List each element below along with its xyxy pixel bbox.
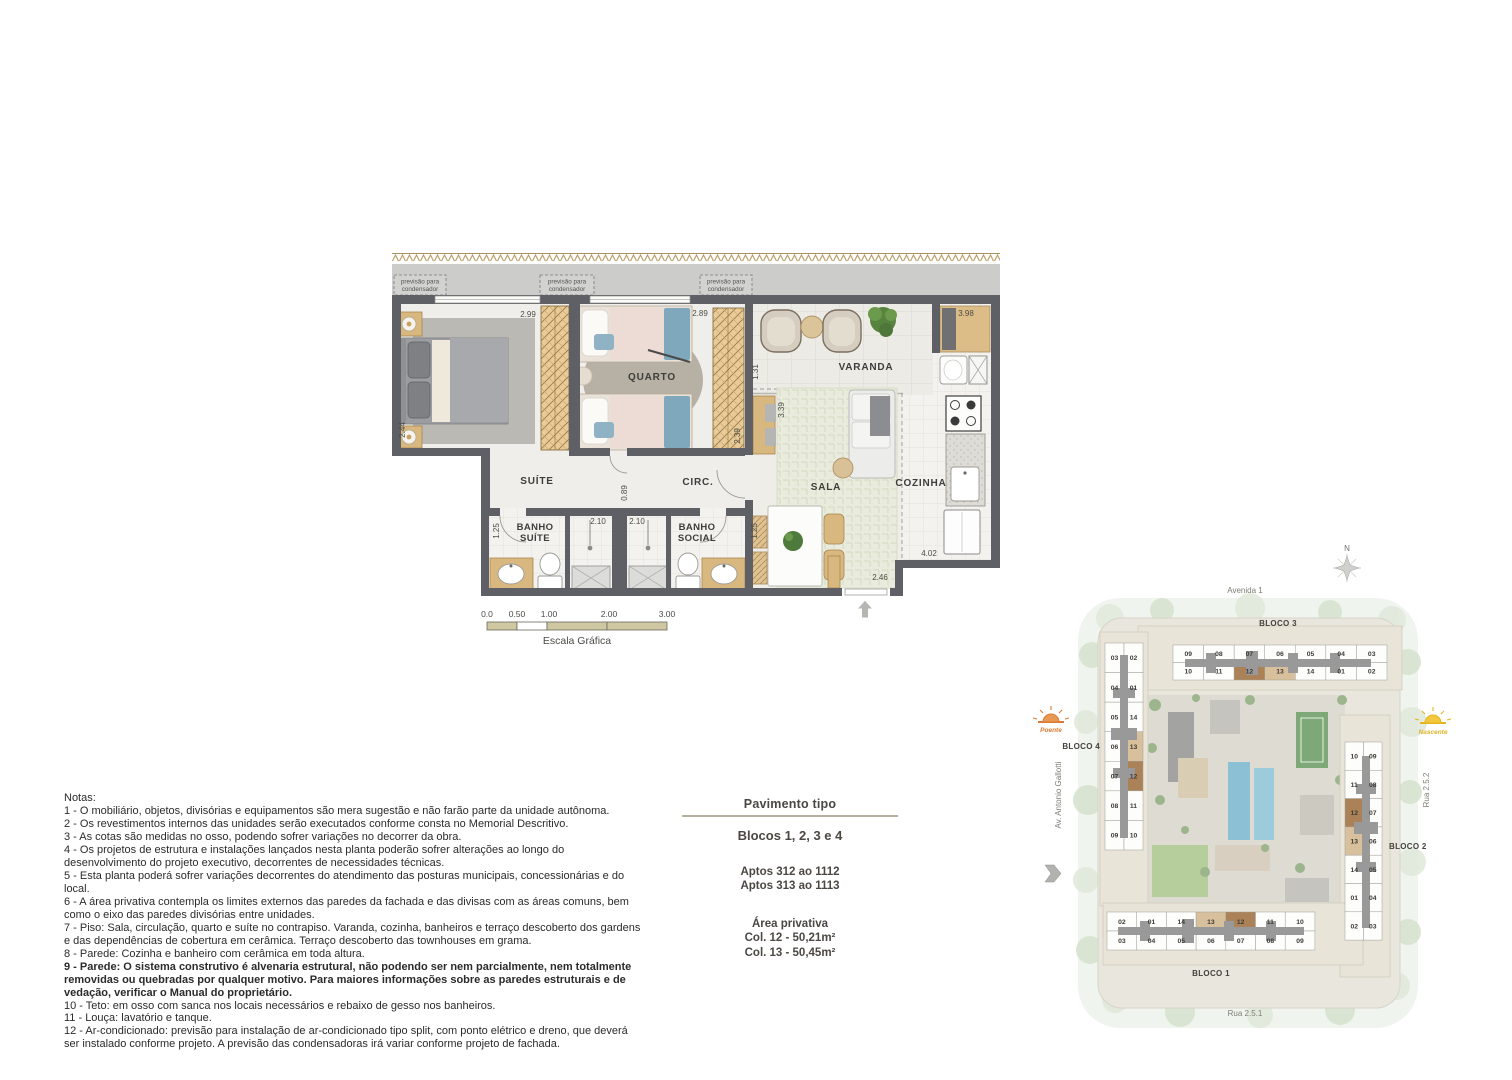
sun-east-label: Nascente bbox=[1419, 729, 1448, 736]
unit-number: 14 bbox=[1177, 919, 1185, 926]
unit-number: 06 bbox=[1369, 838, 1377, 845]
aptos-line: Aptos 312 ao 1112 bbox=[682, 865, 898, 879]
scale-tick: 0.50 bbox=[509, 609, 526, 619]
unit-number: 09 bbox=[1111, 833, 1119, 840]
unit-number: 14 bbox=[1350, 867, 1358, 874]
note-item: 6 - A área privativa contempla os limite… bbox=[64, 896, 644, 922]
dim-suite-left: 2.44 bbox=[398, 422, 407, 438]
area-line: Col. 13 - 50,45m² bbox=[682, 946, 898, 960]
room-label-banho-suite: BANHO bbox=[517, 522, 554, 533]
block-label: BLOCO 3 bbox=[1259, 619, 1297, 628]
aptos-line: Aptos 313 ao 1113 bbox=[682, 879, 898, 893]
unit-number: 07 bbox=[1111, 773, 1119, 780]
sofa bbox=[849, 390, 895, 478]
street-label-bottom: Rua 2.5.1 bbox=[1228, 1009, 1263, 1018]
unit-number: 11 bbox=[1215, 669, 1222, 676]
condenser-label: previsão para bbox=[707, 279, 746, 286]
info-panel-divider bbox=[682, 815, 898, 817]
note-item: 1 - O mobiliário, objetos, divisórias e … bbox=[64, 805, 644, 818]
condenser-label: condensador bbox=[402, 286, 438, 293]
unit-number: 03 bbox=[1118, 938, 1126, 945]
unit-number: 13 bbox=[1207, 919, 1215, 926]
note-item: 10 - Teto: em osso com sanca nos locais … bbox=[64, 1000, 644, 1013]
unit-number: 11 bbox=[1267, 919, 1274, 926]
unit-number: 10 bbox=[1185, 669, 1193, 676]
unit-number: 08 bbox=[1267, 938, 1275, 945]
unit-number: 04 bbox=[1369, 895, 1377, 902]
unit-number: 10 bbox=[1296, 919, 1304, 926]
unit-number: 02 bbox=[1118, 919, 1126, 926]
compass-n-label: N bbox=[1344, 544, 1350, 553]
dim-sala-bottom: 2.46 bbox=[872, 573, 888, 582]
block-label: BLOCO 1 bbox=[1192, 969, 1230, 978]
scale-tick: 3.00 bbox=[659, 609, 676, 619]
note-item: 11 - Louça: lavatório e tanque. bbox=[64, 1012, 644, 1025]
unit-number: 03 bbox=[1368, 651, 1376, 658]
dim-shower-2: 2.10 bbox=[629, 517, 645, 526]
unit-number: 07 bbox=[1237, 938, 1245, 945]
unit-number: 12 bbox=[1237, 919, 1245, 926]
street-label-left: Av. Antonio Gallotti bbox=[1054, 761, 1063, 828]
room-label-cozinha: COZINHA bbox=[895, 478, 946, 489]
unit-number: 07 bbox=[1246, 651, 1254, 658]
brochure-page: previsão para condensador previsão para … bbox=[0, 0, 1512, 1080]
unit-number: 01 bbox=[1148, 919, 1156, 926]
unit-number: 06 bbox=[1111, 744, 1119, 751]
condenser-label: condensador bbox=[708, 286, 744, 293]
dim-banho-suite: 1.25 bbox=[492, 523, 501, 539]
unit-number: 03 bbox=[1369, 923, 1377, 930]
condenser-box-3: previsão para condensador bbox=[700, 275, 752, 295]
unit-number: 14 bbox=[1307, 669, 1315, 676]
dim-varanda-left: 1.31 bbox=[751, 364, 760, 380]
condenser-label: condensador bbox=[549, 286, 585, 293]
sun-west-label: Poente bbox=[1040, 727, 1062, 734]
unit-number: 02 bbox=[1350, 923, 1358, 930]
note-item: 8 - Parede: Cozinha e banheiro com cerâm… bbox=[64, 948, 644, 961]
block-label: BLOCO 2 bbox=[1389, 842, 1427, 851]
room-label-banho-suite: SUÍTE bbox=[520, 533, 550, 544]
unit-number: 06 bbox=[1276, 651, 1284, 658]
unit-number: 03 bbox=[1111, 655, 1119, 662]
note-item: 9 - Parede: O sistema construtivo é alve… bbox=[64, 961, 644, 1000]
dim-quarto-top: 2.89 bbox=[692, 309, 708, 318]
unit-number: 04 bbox=[1337, 651, 1345, 658]
unit-number: 12 bbox=[1130, 773, 1138, 780]
unit-number: 12 bbox=[1246, 669, 1254, 676]
scale-bar: 0.0 0.50 1.00 2.00 3.00 Escala Gráfica bbox=[481, 609, 675, 647]
suite-furniture bbox=[396, 306, 569, 450]
unit-number: 05 bbox=[1369, 867, 1377, 874]
compass: N bbox=[1333, 544, 1361, 582]
facade-strip bbox=[392, 253, 1000, 295]
unit-number: 13 bbox=[1130, 744, 1138, 751]
unit-number: 05 bbox=[1177, 938, 1185, 945]
unit-number: 05 bbox=[1307, 651, 1315, 658]
street-label-top: Avenida 1 bbox=[1227, 586, 1263, 595]
unit-number: 04 bbox=[1111, 685, 1119, 692]
room-label-quarto: QUARTO bbox=[628, 372, 676, 383]
area-title: Área privativa bbox=[682, 917, 898, 931]
room-label-circ: CIRC. bbox=[682, 477, 713, 488]
condenser-label: previsão para bbox=[401, 279, 440, 286]
double-bed bbox=[396, 338, 508, 424]
unit-number: 09 bbox=[1296, 938, 1304, 945]
info-panel-title: Pavimento tipo bbox=[682, 797, 898, 811]
unit-number: 04 bbox=[1148, 938, 1156, 945]
dim-sala-left: 3.39 bbox=[777, 402, 786, 418]
notes-list: 1 - O mobiliário, objetos, divisórias e … bbox=[64, 805, 644, 1051]
dim-suite-top: 2.99 bbox=[520, 310, 536, 319]
condenser-box-1: previsão para condensador bbox=[394, 275, 446, 295]
unit-number: 05 bbox=[1111, 714, 1119, 721]
dim-cozinha-bottom: 4.02 bbox=[921, 549, 937, 558]
unit-number: 06 bbox=[1207, 938, 1215, 945]
info-panel-aptos: Aptos 312 ao 1112 Aptos 313 ao 1113 bbox=[682, 865, 898, 894]
sun-west-icon: Poente bbox=[1033, 706, 1069, 734]
unit-number: 01 bbox=[1350, 895, 1358, 902]
note-item: 5 - Esta planta poderá sofrer variações … bbox=[64, 870, 644, 896]
unit-number: 14 bbox=[1130, 714, 1138, 721]
single-bed-1 bbox=[578, 306, 692, 362]
room-label-suite: SUÍTE bbox=[520, 474, 553, 487]
scale-tick: 1.00 bbox=[541, 609, 558, 619]
unit-number: 07 bbox=[1369, 810, 1377, 817]
dim-quarto-right: 2.39 bbox=[733, 428, 742, 444]
condenser-label: previsão para bbox=[548, 279, 587, 286]
unit-number: 02 bbox=[1130, 655, 1138, 662]
unit-number: 11 bbox=[1130, 803, 1137, 810]
dim-cozinha-top: 3.98 bbox=[958, 309, 974, 318]
scale-bar-label: Escala Gráfica bbox=[543, 635, 611, 647]
note-item: 3 - As cotas são medidas no osso, podend… bbox=[64, 831, 644, 844]
note-item: 12 - Ar-condicionado: previsão para inst… bbox=[64, 1025, 644, 1051]
info-panel-area: Área privativa Col. 12 - 50,21m² Col. 13… bbox=[682, 917, 898, 960]
unit-number: 13 bbox=[1276, 669, 1284, 676]
unit-number: 11 bbox=[1351, 782, 1358, 789]
notes-section: Notas: 1 - O mobiliário, objetos, divisó… bbox=[64, 792, 644, 1051]
block-label: BLOCO 4 bbox=[1062, 742, 1100, 751]
unit-number: 10 bbox=[1350, 754, 1358, 761]
unit-number: 01 bbox=[1130, 685, 1138, 692]
unit-number: 13 bbox=[1350, 838, 1358, 845]
site-entry-arrow-icon bbox=[1045, 865, 1061, 882]
room-label-banho-social: BANHO bbox=[679, 522, 716, 533]
note-item: 7 - Piso: Sala, circulação, quarto e suí… bbox=[64, 922, 644, 948]
room-label-sala: SALA bbox=[811, 482, 841, 493]
unit-number: 10 bbox=[1130, 833, 1138, 840]
room-label-varanda: VARANDA bbox=[839, 362, 894, 373]
unit-number: 09 bbox=[1185, 651, 1193, 658]
floor-plan: previsão para condensador previsão para … bbox=[392, 253, 1000, 618]
condenser-box-2: previsão para condensador bbox=[540, 275, 594, 295]
unit-number: 08 bbox=[1111, 803, 1119, 810]
unit-number: 01 bbox=[1337, 669, 1345, 676]
unit-number: 08 bbox=[1369, 782, 1377, 789]
entry-door-leaf bbox=[828, 556, 840, 588]
street-label-right: Rua 2.5.2 bbox=[1422, 772, 1431, 807]
dim-banho-social: 1.25 bbox=[750, 523, 759, 539]
scale-tick: 2.00 bbox=[601, 609, 618, 619]
entry-arrow-icon bbox=[857, 600, 873, 618]
stove bbox=[946, 396, 981, 431]
scale-tick: 0.0 bbox=[481, 609, 493, 619]
area-line: Col. 12 - 50,21m² bbox=[682, 931, 898, 945]
unit-number: 02 bbox=[1368, 669, 1376, 676]
site-plan: 0908070605040310111213140102BLOCO 303040… bbox=[1033, 544, 1451, 1028]
dim-shower-1: 2.10 bbox=[590, 517, 606, 526]
dim-circ: 0.89 bbox=[620, 485, 629, 501]
unit-number: 12 bbox=[1350, 810, 1358, 817]
notes-title: Notas: bbox=[64, 792, 644, 805]
single-bed-2 bbox=[578, 394, 692, 450]
room-label-banho-social: SOCIAL bbox=[678, 533, 716, 544]
note-item: 4 - Os projetos de estrutura e instalaçõ… bbox=[64, 844, 644, 870]
unit-number: 09 bbox=[1369, 754, 1377, 761]
note-item: 2 - Os revestimentos internos das unidad… bbox=[64, 818, 644, 831]
courtyard bbox=[1147, 694, 1349, 905]
unit-number: 08 bbox=[1215, 651, 1223, 658]
info-panel-blocks: Blocos 1, 2, 3 e 4 bbox=[682, 828, 898, 843]
info-panel: Pavimento tipo Blocos 1, 2, 3 e 4 Aptos … bbox=[682, 797, 898, 960]
